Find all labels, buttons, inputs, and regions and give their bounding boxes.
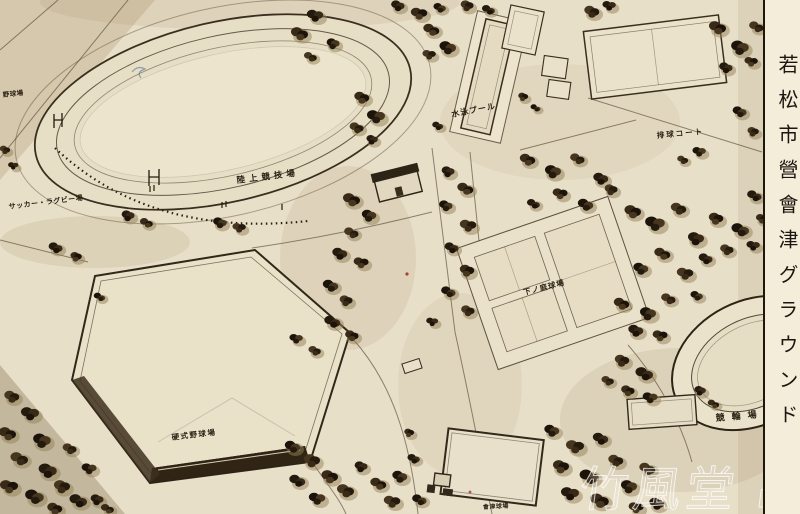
tree-icon <box>145 223 151 228</box>
tree-icon <box>290 447 297 453</box>
tree-icon <box>606 381 612 386</box>
tree-icon <box>753 196 759 201</box>
postcard-map: 野球場 サッカー・ラグビー場 陸上競技場 水泳プール 排球コート 下ノ庭球場 硬… <box>0 0 800 514</box>
tree-icon <box>735 48 744 55</box>
tree-icon <box>724 250 730 255</box>
tree-icon <box>695 296 701 301</box>
tree-icon <box>430 322 435 326</box>
tree-icon <box>342 491 350 498</box>
tree-icon <box>660 254 667 260</box>
tree-icon <box>632 331 639 337</box>
tree-icon <box>657 336 663 341</box>
tree-icon <box>681 160 686 164</box>
tree-icon <box>53 248 59 253</box>
tree-icon <box>11 166 15 170</box>
tree-icon <box>644 314 652 321</box>
tree-icon <box>348 200 356 207</box>
tree-icon <box>447 292 453 297</box>
tree-icon <box>67 449 73 454</box>
tree-icon <box>566 494 574 501</box>
tree-icon <box>697 391 703 396</box>
tree-icon <box>438 8 444 13</box>
tree-icon <box>106 509 112 514</box>
tree-icon <box>748 62 754 67</box>
tree-icon <box>436 126 441 130</box>
tree-icon <box>750 246 756 251</box>
tree-icon <box>737 112 743 117</box>
tree-icon <box>358 263 364 268</box>
tree-icon <box>750 132 756 137</box>
tree-icon <box>525 160 532 166</box>
tree-icon <box>692 239 700 246</box>
map-illustration: 野球場 サッカー・ラグビー場 陸上競技場 水泳プール 排球コート 下ノ庭球場 硬… <box>0 0 800 514</box>
tree-icon <box>418 500 424 505</box>
tree-icon <box>312 16 319 22</box>
tree-icon <box>576 159 582 164</box>
tree-icon <box>5 487 13 494</box>
tree-icon <box>395 6 401 11</box>
tree-icon <box>309 57 315 62</box>
tree-icon <box>535 108 539 112</box>
tree-icon <box>73 257 79 262</box>
tree-icon <box>465 311 471 316</box>
tree-icon <box>629 212 637 219</box>
tree-icon <box>357 467 363 472</box>
title-strip: 若松市營會津グラウンド <box>763 0 800 514</box>
tree-icon <box>365 216 372 222</box>
tree-icon <box>463 189 470 195</box>
tree-icon <box>37 441 46 448</box>
tree-icon <box>328 286 335 292</box>
tree-icon <box>738 230 746 237</box>
tree-icon <box>557 194 563 199</box>
tree-icon <box>372 117 380 124</box>
tree-icon <box>217 223 223 228</box>
tree-icon <box>607 190 613 195</box>
tree-icon <box>4 434 12 441</box>
tree-icon <box>444 172 450 177</box>
red-speck <box>405 272 408 275</box>
tree-icon <box>93 500 99 505</box>
tree-icon <box>571 447 579 454</box>
red-speck <box>469 491 472 494</box>
tree-icon <box>58 487 66 494</box>
tree-icon <box>426 55 432 60</box>
tree-icon <box>463 6 469 11</box>
tree-icon <box>296 34 304 41</box>
tree-icon <box>647 398 653 403</box>
tree-icon <box>606 6 612 11</box>
tree-icon <box>712 219 719 225</box>
tree-icon <box>293 339 299 344</box>
tree-icon <box>342 301 348 306</box>
tree-icon <box>443 206 449 211</box>
tree-icon <box>31 497 40 504</box>
tree-icon <box>44 471 53 478</box>
tree-icon <box>369 140 375 145</box>
tree-icon <box>396 477 403 483</box>
tree-icon <box>308 461 316 468</box>
tree-icon <box>548 431 555 437</box>
tree-icon <box>86 469 92 474</box>
tree-icon <box>236 228 242 233</box>
tree-icon <box>714 28 722 35</box>
tree-icon <box>712 404 717 408</box>
tree-icon <box>642 374 650 381</box>
label-bottom-small: 會津球場 <box>483 502 509 511</box>
tree-icon <box>416 14 423 20</box>
tree-icon <box>588 12 595 18</box>
tree-icon <box>389 502 396 508</box>
tree-icon <box>618 361 625 367</box>
tree-icon <box>465 226 472 232</box>
tree-icon <box>406 433 411 437</box>
tree-icon <box>444 48 452 55</box>
tree-icon <box>520 97 525 101</box>
tree-icon <box>329 44 335 49</box>
tree-icon <box>487 10 493 15</box>
tree-icon <box>723 68 729 73</box>
tree-icon <box>330 322 337 328</box>
tree-icon <box>376 484 383 490</box>
postcard-title: 若松市營會津グラウンド <box>772 54 800 439</box>
tree-icon <box>583 205 590 211</box>
tree-icon <box>532 204 538 209</box>
tree-icon <box>598 439 605 445</box>
tree-icon <box>667 299 673 304</box>
tree-icon <box>336 254 343 260</box>
tree-icon <box>354 128 360 133</box>
tree-icon <box>98 297 103 301</box>
tree-icon <box>295 481 302 487</box>
tree-icon <box>755 27 761 32</box>
tree-icon <box>625 391 631 396</box>
tree-icon <box>2 150 7 154</box>
tree-icon <box>637 269 644 275</box>
tree-icon <box>313 351 319 356</box>
tree-icon <box>17 459 25 466</box>
tree-icon <box>619 304 626 310</box>
tree-icon <box>412 459 418 464</box>
tree-icon <box>326 477 334 484</box>
tree-icon <box>358 98 365 104</box>
tree-icon <box>703 259 709 264</box>
tree-icon <box>8 397 15 403</box>
southeast-building <box>627 395 697 430</box>
tree-icon <box>463 271 470 277</box>
tree-icon <box>651 224 660 231</box>
tree-icon <box>429 30 436 36</box>
tree-icon <box>557 467 565 474</box>
tree-icon <box>349 336 355 341</box>
tree-icon <box>549 172 557 179</box>
tree-icon <box>696 152 702 157</box>
tree-icon <box>76 501 84 508</box>
tree-icon <box>682 274 689 280</box>
tree-icon <box>124 216 130 221</box>
tree-icon <box>597 179 604 185</box>
tree-icon <box>26 414 34 421</box>
tree-icon <box>449 248 455 253</box>
tree-icon <box>676 209 683 215</box>
tree-icon <box>350 233 356 238</box>
tree-icon <box>314 499 321 505</box>
